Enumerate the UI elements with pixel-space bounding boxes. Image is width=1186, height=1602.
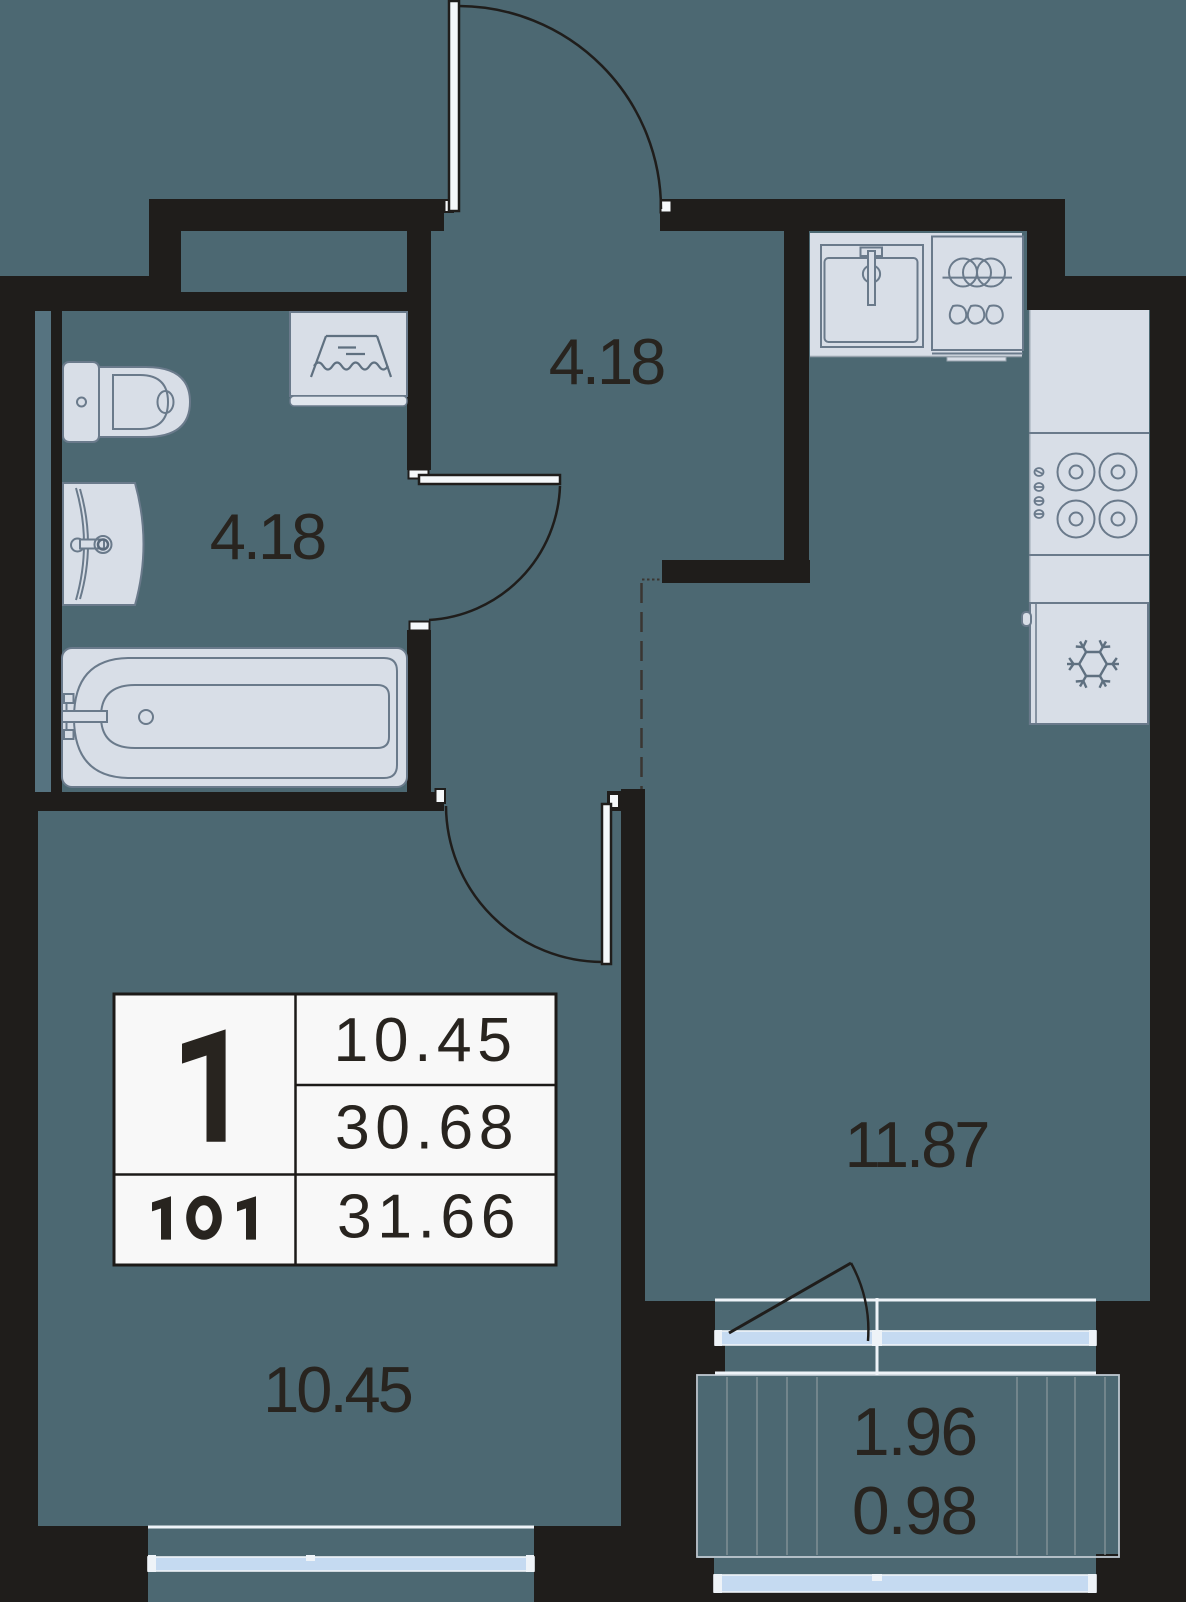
svg-text:1.96: 1.96 — [852, 1394, 976, 1470]
svg-text:10.45: 10.45 — [263, 1353, 412, 1426]
svg-text:0.98: 0.98 — [852, 1473, 976, 1549]
svg-text:4.18: 4.18 — [549, 325, 664, 398]
svg-text:30.68: 30.68 — [335, 1093, 519, 1163]
svg-text:4.18: 4.18 — [210, 500, 325, 573]
svg-text:31.66: 31.66 — [337, 1182, 521, 1252]
svg-text:10.45: 10.45 — [334, 1005, 518, 1075]
svg-text:11.87: 11.87 — [845, 1108, 988, 1181]
